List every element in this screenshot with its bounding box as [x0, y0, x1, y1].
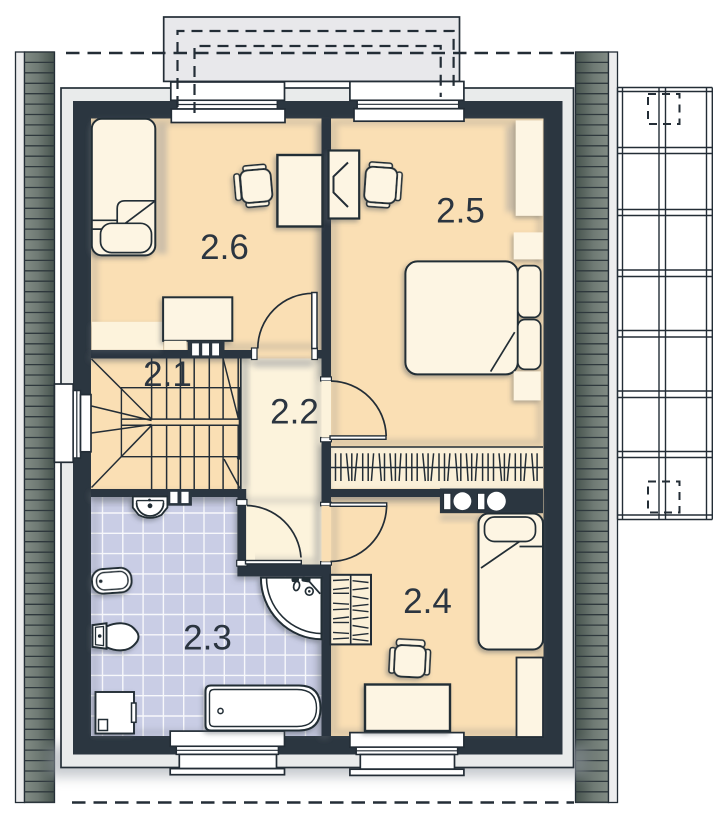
svg-text:2.6: 2.6 [200, 228, 249, 267]
svg-text:2.2: 2.2 [270, 393, 319, 432]
svg-text:2.4: 2.4 [403, 582, 452, 621]
svg-text:2.1: 2.1 [143, 355, 192, 394]
svg-text:2.5: 2.5 [436, 192, 485, 231]
svg-text:2.3: 2.3 [183, 619, 232, 658]
